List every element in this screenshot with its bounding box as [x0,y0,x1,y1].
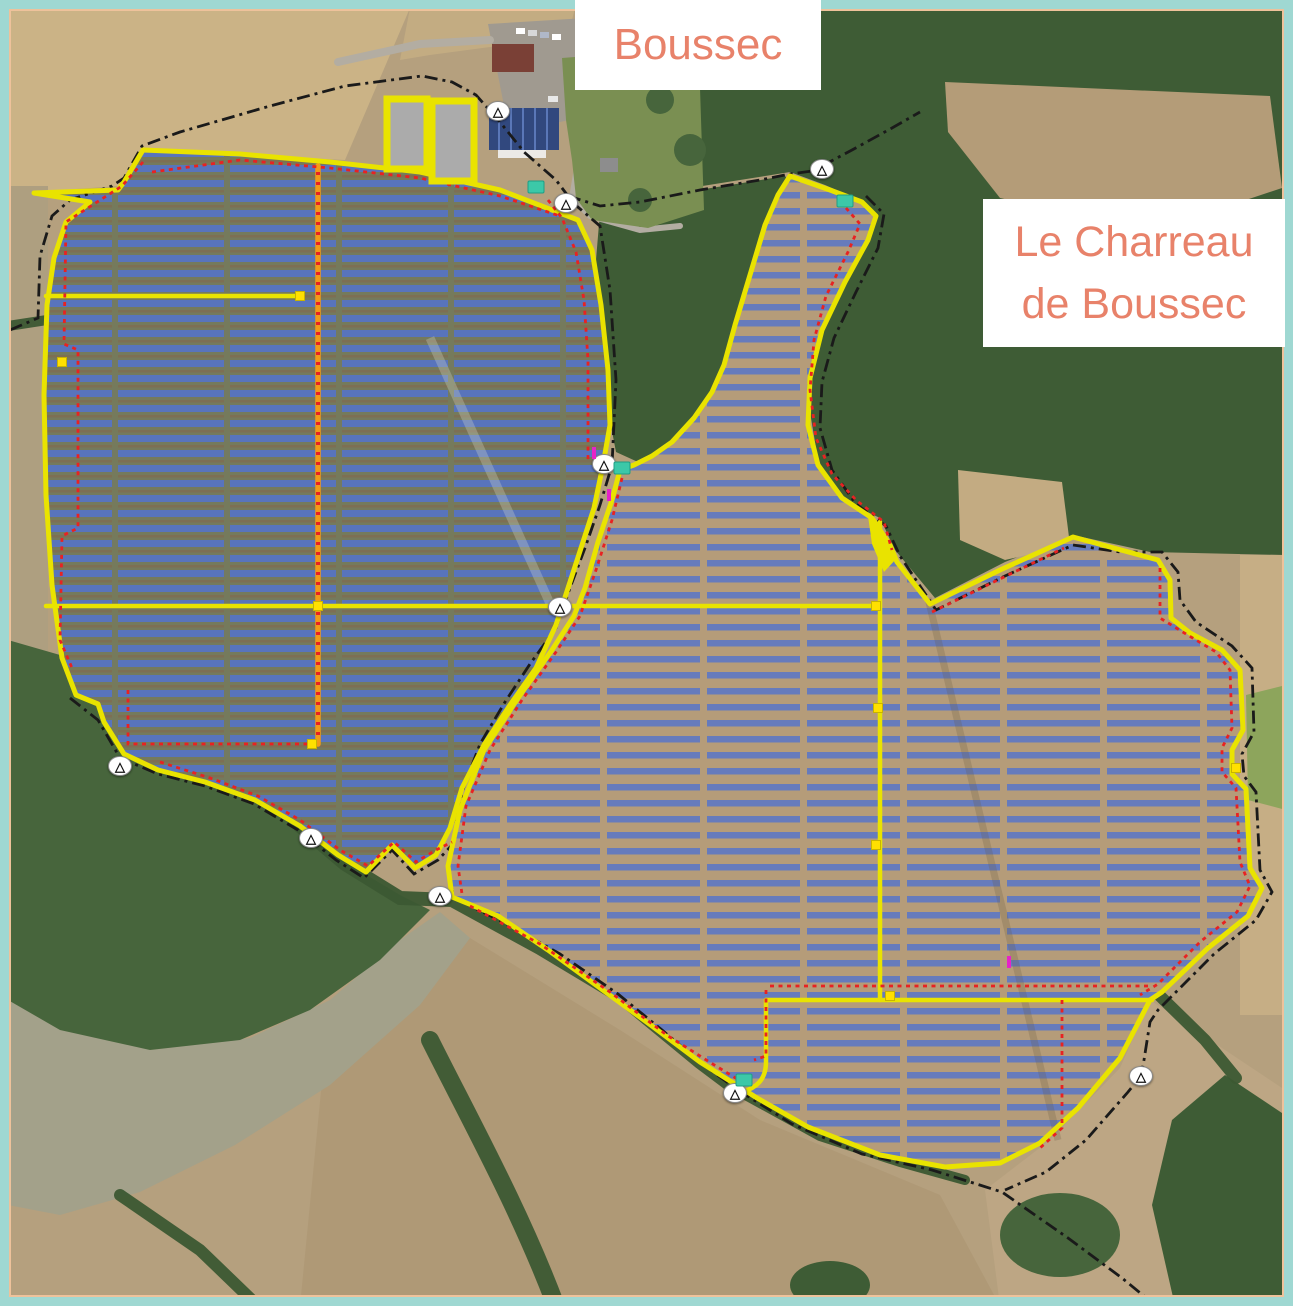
place-label-text: Boussec [614,20,783,70]
barn-apron [498,150,546,158]
field-west-strip [8,186,48,706]
laydown-rect-2 [432,101,474,181]
tree [646,86,674,114]
place-label-line1: Le Charreau [1014,211,1253,273]
place-label-le-charreau: Le Charreau de Boussec [983,199,1285,347]
map-canvas [0,0,1293,1306]
place-label-boussec: Boussec [575,0,821,90]
place-label-line2: de Boussec [1022,273,1247,335]
laydown-rect-1 [387,99,427,169]
aerial-site-map: △△△△△△△△△△ Boussec Le Charreau de Bousse… [0,0,1293,1306]
barn-red-roof [492,44,534,72]
laydown-areas [387,99,474,181]
farm-shed [600,158,618,172]
tree [674,134,706,166]
